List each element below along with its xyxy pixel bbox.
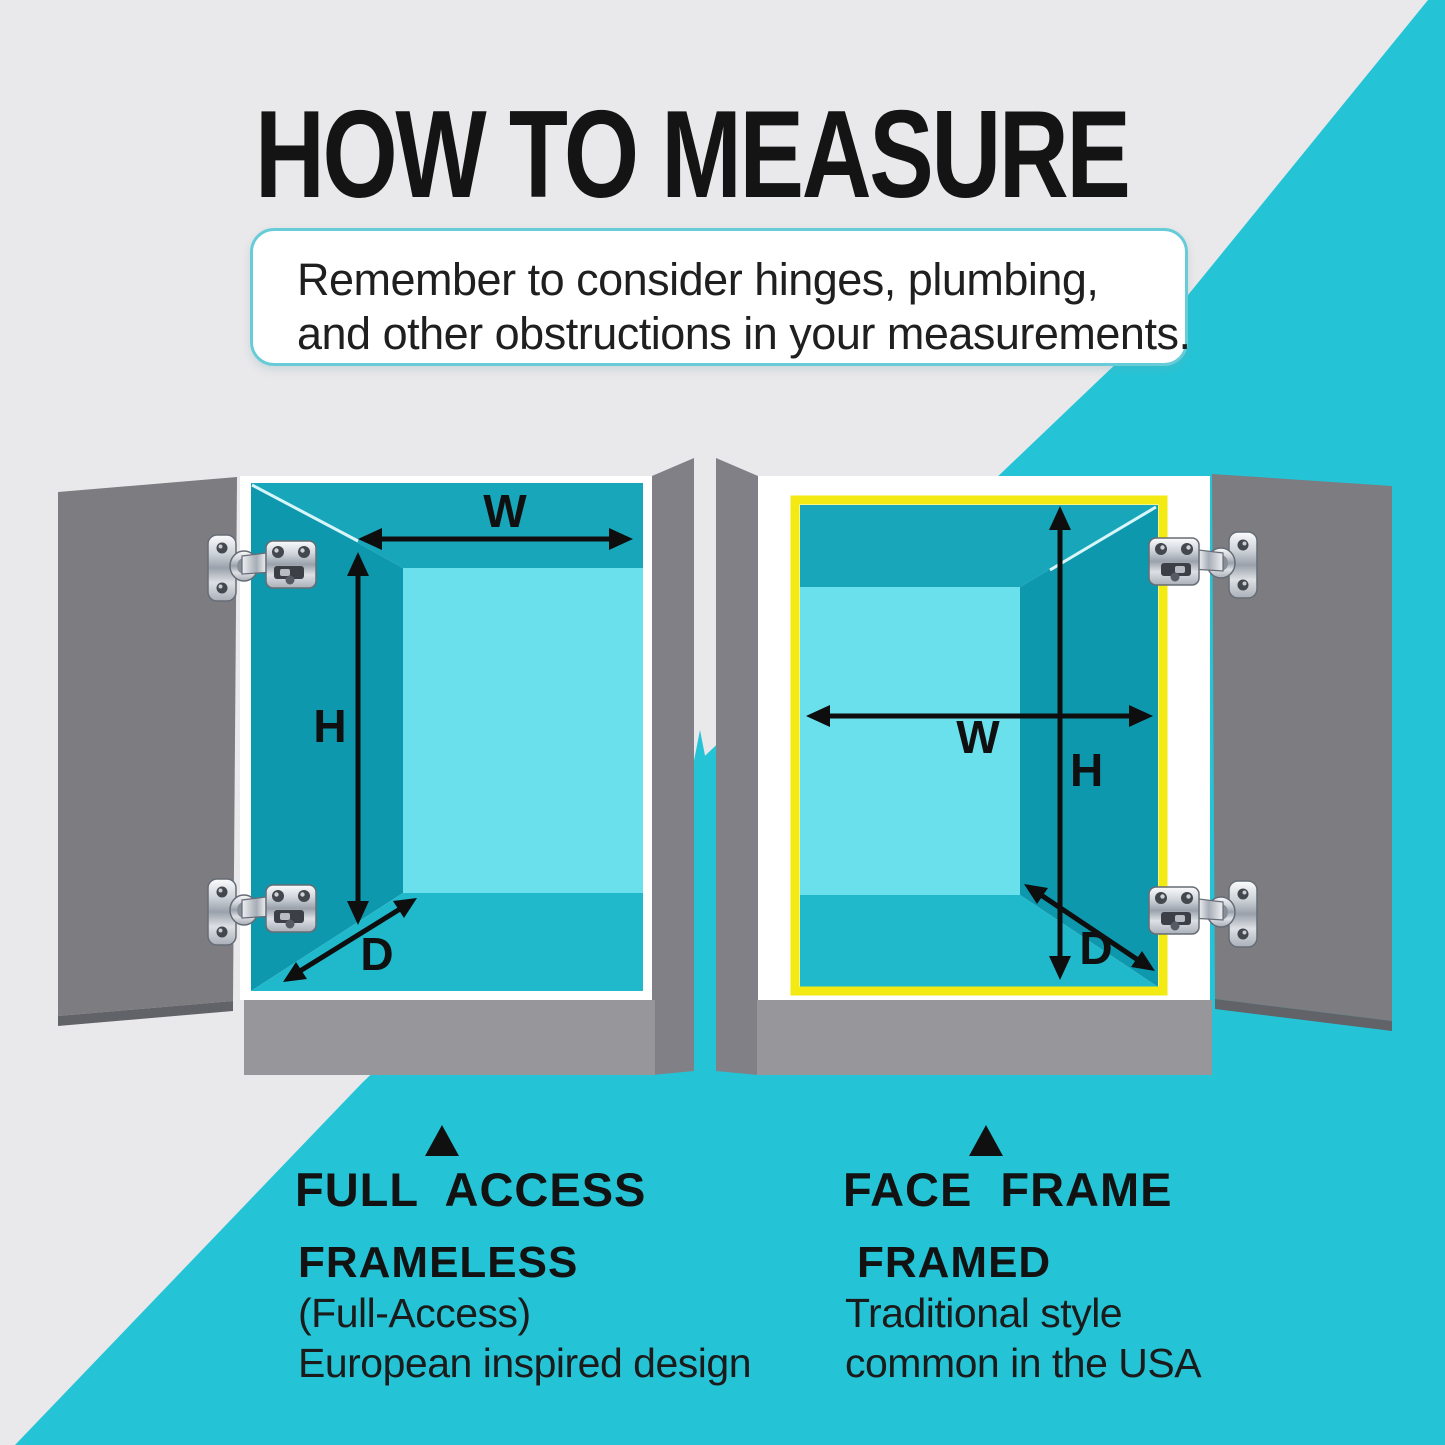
face-frame-cabinet-illustration: W H D xyxy=(716,458,1392,1075)
left-interior-back-panel xyxy=(403,568,643,893)
right-height-label: H xyxy=(1070,744,1103,796)
left-section-detail-1: (Full-Access) xyxy=(298,1290,531,1337)
frameless-cabinet-illustration: W H D xyxy=(58,458,694,1075)
infographic-canvas: W H D xyxy=(0,0,1445,1445)
page-title: HOW TO MEASURE xyxy=(255,84,1191,226)
left-width-label: W xyxy=(483,485,527,537)
right-section-detail-1: Traditional style xyxy=(845,1290,1122,1337)
left-cabinet-base xyxy=(244,1000,655,1075)
right-width-label: W xyxy=(956,711,1000,763)
right-cabinet-base xyxy=(757,1000,1212,1075)
left-height-label: H xyxy=(313,700,346,752)
left-section-detail-2: European inspired design xyxy=(298,1340,751,1387)
note-box: Remember to consider hinges, plumbing, a… xyxy=(250,228,1188,366)
left-depth-label: D xyxy=(360,928,393,980)
right-depth-label: D xyxy=(1079,922,1112,974)
right-section-heading: FACE FRAME xyxy=(843,1162,1173,1217)
right-section-subheading: FRAMED xyxy=(857,1238,1051,1288)
left-section-subheading: FRAMELESS xyxy=(298,1238,578,1288)
right-up-triangle-icon xyxy=(969,1125,1003,1156)
right-cabinet-side-panel xyxy=(716,458,758,1075)
left-cabinet-side-panel xyxy=(652,458,694,1075)
note-line-1: Remember to consider hinges, plumbing, xyxy=(297,253,1185,307)
note-line-2: and other obstructions in your measureme… xyxy=(297,307,1185,361)
left-up-triangle-icon xyxy=(425,1125,459,1156)
right-section-detail-2: common in the USA xyxy=(845,1340,1201,1387)
left-section-heading: FULL ACCESS xyxy=(295,1162,646,1217)
